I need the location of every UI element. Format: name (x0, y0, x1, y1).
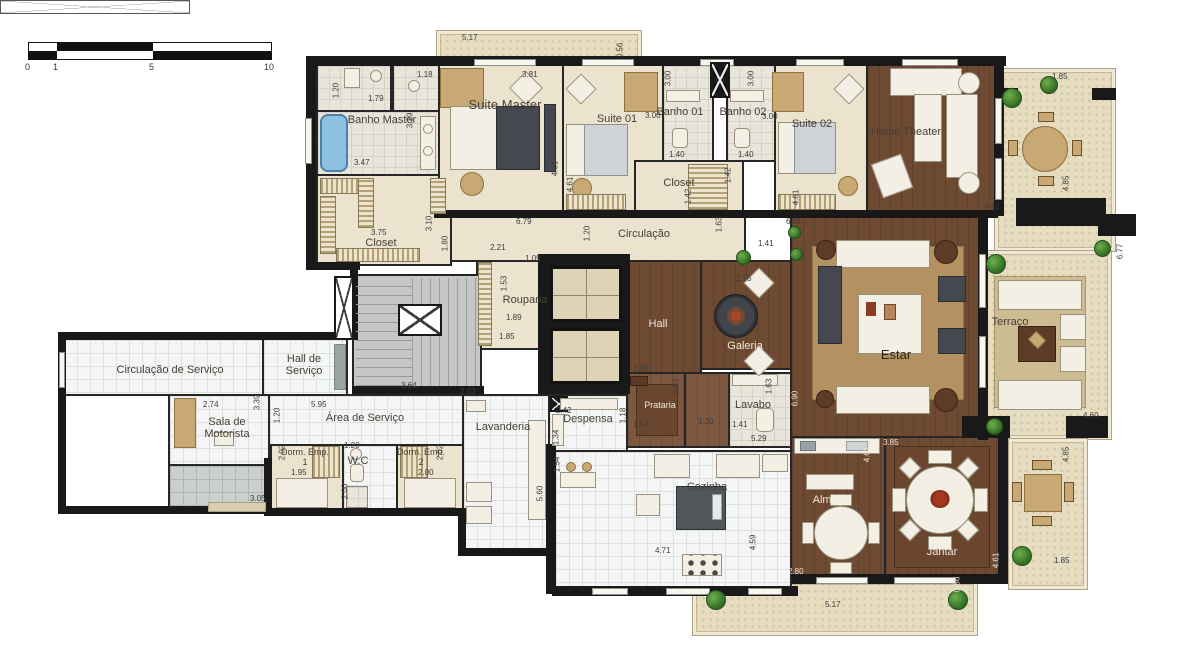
side-table (934, 240, 958, 264)
plant-icon (986, 418, 1003, 435)
terrace-chair (1038, 176, 1054, 186)
dim-label: 5.95 (311, 400, 327, 409)
scale-segment (57, 51, 153, 59)
chair (974, 488, 988, 512)
sink (423, 146, 433, 156)
scale-segment (29, 51, 57, 59)
window (796, 59, 844, 66)
dim-label: 2.42 (556, 406, 572, 415)
kitchen-counter (654, 454, 690, 478)
suite-02-desk (772, 72, 804, 112)
room-label-rouparia: Rouparia (490, 294, 560, 306)
wall-terrace-block-1 (1016, 198, 1106, 226)
estar-armchair (938, 276, 966, 302)
terrace-chair (1032, 516, 1052, 526)
window (979, 254, 986, 308)
terrace-chair (1012, 482, 1022, 502)
dim-label: 1.85 (499, 332, 515, 341)
almoco-table (814, 506, 868, 560)
laundry-sink (466, 506, 492, 524)
scale-label-0: 0 (25, 62, 30, 72)
room-label-suite-02: Suite 02 (777, 118, 847, 130)
home-theater-sofa (890, 68, 962, 96)
dim-label: 1.41 (732, 420, 748, 429)
washing-machine (466, 482, 492, 502)
plant-icon (1012, 546, 1032, 566)
terrace-chair (1038, 112, 1054, 122)
dorm2-bed (404, 478, 456, 508)
plant-icon (1094, 240, 1111, 257)
suite-master-ottoman (460, 172, 484, 196)
dim-label: 3.29 (405, 113, 414, 129)
kitchen-appliance (762, 454, 788, 472)
terrace-sofa (998, 280, 1082, 310)
dim-label: 5.60 (535, 486, 544, 502)
service-duct (0, 0, 190, 14)
window (59, 352, 65, 388)
dim-label: 3.10 (424, 216, 433, 232)
plant-icon (948, 590, 968, 610)
kitchen-table (560, 472, 596, 488)
shower-stall (346, 486, 368, 508)
room-label-cozinha: Cozinha (677, 481, 737, 493)
terrace-small-table (1024, 474, 1062, 512)
room-label-lavabo: Lavabo (725, 399, 781, 411)
counter-sink (800, 441, 816, 451)
coffee-table-decor (884, 304, 896, 320)
wicker-chair (1060, 346, 1086, 372)
dim-label: 1.63 (671, 379, 680, 395)
dim-label: 4.60 (1083, 411, 1099, 420)
window (995, 98, 1002, 144)
dim-label: 2.21 (490, 243, 506, 252)
scale-segment (153, 43, 271, 51)
dim-label: 3.00 (663, 71, 672, 87)
laundry-shelf (466, 400, 486, 412)
dim-label: 1.95 (291, 468, 307, 477)
dorm1-bed (276, 478, 328, 508)
room-label-suite-master: Suite Master (455, 98, 555, 113)
dim-label: 2.00 (340, 484, 349, 500)
room-label-dorm-emp-1: Dorm. Emp. 1 (280, 447, 330, 467)
almoco-sideboard (806, 474, 854, 490)
dim-label: 4.85 (1061, 447, 1070, 463)
wall-top (306, 56, 1006, 66)
room-label-closet-suites: Closet (649, 177, 709, 189)
table-centerpiece (930, 490, 950, 508)
suite-01-bed-cover (584, 124, 628, 176)
terrace-round-table (1022, 126, 1068, 172)
room-label-lavanderia: Lavanderia (463, 421, 543, 433)
dim-label: 1.09 (525, 254, 541, 263)
dim-label: 4.85 (1061, 176, 1070, 192)
side-table (958, 172, 980, 194)
dim-label: 1.20 (272, 408, 281, 424)
coffee-table-decor (866, 302, 876, 316)
terrace-chair (1032, 460, 1052, 470)
dim-label: 4.71 (655, 546, 671, 555)
dim-label: 3.47 (354, 158, 370, 167)
banho-01-counter (666, 90, 700, 102)
galeria-round-rug (714, 294, 758, 338)
dim-label: 4.61 (565, 177, 574, 193)
room-label-banho-02: Banho 02 (719, 106, 767, 118)
dim-label: 6.77 (1115, 244, 1124, 260)
shower-head (408, 80, 420, 92)
window (995, 158, 1002, 200)
service-elevator-shaft (334, 276, 354, 340)
floor-plan: Banho Master Suite Master Suite 01 Banho… (0, 0, 1200, 655)
toilet (672, 128, 688, 148)
dim-label: 4.61 (791, 190, 800, 206)
closet-wardrobe (430, 178, 446, 214)
service-mat (334, 344, 346, 390)
room-label-closet-master: Closet (351, 237, 411, 249)
scale-segment (153, 51, 271, 59)
dim-label: 1.41 (758, 239, 774, 248)
room-label-estar: Estar (866, 348, 926, 363)
chair (802, 522, 814, 544)
chair (868, 522, 880, 544)
dim-label: 1.80 (440, 236, 449, 252)
suite-02-ottoman (838, 176, 858, 196)
terrace-sofa (998, 380, 1082, 410)
dim-label: 3.05 (250, 494, 266, 503)
estar-chaise (818, 266, 842, 344)
toilet (344, 68, 360, 88)
dim-label: 4.42 (984, 202, 1000, 211)
window (474, 59, 536, 66)
chair (928, 450, 952, 464)
dim-label: 1.53 (499, 276, 508, 292)
dim-label: 1.34 (551, 430, 560, 446)
dim-label: 2.74 (203, 400, 219, 409)
suite-master-bed-cover (496, 106, 540, 170)
terrace-chair (1008, 140, 1018, 156)
dim-label: 3.75 (371, 228, 387, 237)
dim-label: 1.20 (344, 441, 360, 450)
plant-icon (706, 590, 726, 610)
bathtub (320, 114, 348, 172)
room-label-prataria: Prataria (628, 400, 692, 410)
wall-lavanderia-bottom (458, 548, 554, 556)
side-table (934, 388, 958, 412)
kitchen-counter (716, 454, 760, 478)
dim-label: 3.85 (883, 438, 899, 447)
dim-label: 1.89 (506, 313, 522, 322)
room-hall (626, 260, 702, 374)
chair (892, 488, 906, 512)
dim-label: 3.00 (746, 71, 755, 87)
estar-sofa-north (836, 240, 930, 268)
kitchen-island-panel (712, 494, 722, 520)
window (894, 577, 956, 584)
room-label-wc: W.C (340, 455, 376, 467)
dim-label: 1.20 (582, 226, 591, 242)
dim-label: 6.79 (516, 217, 532, 226)
estar-armchair (938, 328, 966, 354)
stove (682, 554, 722, 576)
plant-icon (736, 250, 751, 265)
wicker-chair (1060, 314, 1086, 340)
dim-label: 3.39 (252, 395, 261, 411)
dim-label: 1.18 (417, 70, 433, 79)
suite-01-wardrobe (566, 194, 626, 210)
prataria-cabinet (630, 376, 648, 386)
room-label-area-servico: Área de Serviço (310, 412, 420, 424)
side-table (816, 240, 836, 260)
dim-label: 4.61 (862, 447, 871, 463)
closet-wardrobe (358, 178, 374, 228)
room-label-terraco: Terraço (982, 316, 1038, 328)
dim-label: 2.75 (736, 274, 752, 283)
window (902, 59, 958, 66)
window (305, 118, 312, 164)
dim-label: 5.17 (825, 600, 841, 609)
elevator-1 (550, 266, 622, 322)
dim-label: 0.86 (952, 577, 961, 593)
toilet (734, 128, 750, 148)
suite-01-desk (624, 72, 658, 112)
dim-label: 1.54 (633, 420, 649, 429)
dim-label: 5.17 (462, 33, 478, 42)
dim-label: 3.00 (645, 111, 661, 120)
dim-label: 1.54 (552, 457, 561, 473)
window (592, 588, 628, 595)
dim-label: 1.40 (738, 150, 754, 159)
dim-label: 3.64 (401, 381, 417, 390)
kitchen-cabinet (636, 494, 660, 516)
dim-label: 4.61 (550, 161, 559, 177)
plant-icon (790, 248, 803, 261)
wall-service-top (62, 332, 354, 340)
dim-label: 3.00 (762, 112, 778, 121)
dim-label: 1.20 (331, 83, 340, 99)
estar-sofa-south (836, 386, 930, 414)
stool (566, 462, 576, 472)
terrace-chair (1064, 482, 1074, 502)
duct-shaft (710, 62, 730, 98)
terrace-chair (1072, 140, 1082, 156)
dim-label: 4.61 (991, 553, 1000, 569)
window (979, 336, 986, 388)
side-table (958, 72, 980, 94)
dim-label: 2.80 (788, 567, 804, 576)
plant-icon (1002, 88, 1022, 108)
suite-02-wardrobe (778, 194, 836, 210)
dim-label: 2.00 (418, 468, 434, 477)
elevator-2 (550, 328, 622, 384)
scale-bar (28, 42, 272, 60)
dim-label: 1.79 (368, 94, 384, 103)
dim-label: 2.02 (435, 445, 444, 461)
plant-icon (788, 226, 801, 239)
sink (423, 124, 433, 134)
room-label-banho-01: Banho 01 (656, 106, 704, 118)
side-table (816, 390, 834, 408)
room-label-sala-motorista: Sala de Motorista (192, 416, 262, 441)
home-theater-sectional (946, 94, 978, 178)
dim-label: 0.56 (615, 43, 624, 59)
room-label-jantar: Jantar (912, 546, 972, 558)
stool (582, 462, 592, 472)
toilet (756, 408, 774, 432)
room-label-hall: Hall (638, 318, 678, 330)
stair-void (398, 304, 442, 336)
dim-label: 4.59 (748, 535, 757, 551)
window (582, 59, 634, 66)
dim-label: 3.81 (522, 70, 538, 79)
sink (370, 70, 382, 82)
closet-wardrobe (336, 248, 420, 262)
dim-label: 2.02 (277, 445, 286, 461)
window (666, 588, 710, 595)
dim-label: 1.63 (764, 379, 773, 395)
dim-label: 1.55 (633, 364, 649, 373)
dim-label: 1.85 (1052, 72, 1068, 81)
window (816, 577, 868, 584)
scale-label-1: 1 (53, 62, 58, 72)
room-label-circulacao-servico: Circulação de Serviço (95, 364, 245, 376)
dim-label: 5.29 (751, 434, 767, 443)
dim-label: 2.83 (460, 387, 476, 396)
dim-label: 1.42 (683, 189, 692, 205)
entry-mat (208, 502, 266, 512)
wall-dorm-bottom (264, 508, 466, 516)
scale-segment (29, 43, 57, 51)
wall-terrace-post-2 (1092, 88, 1116, 100)
room-label-suite-01: Suite 01 (582, 113, 652, 125)
wall-terrace-block-2 (1098, 214, 1136, 236)
dim-label: 1.40 (669, 150, 685, 159)
window (748, 588, 782, 595)
banho-02-counter (730, 90, 764, 102)
scale-segment (57, 43, 153, 51)
chair (830, 562, 852, 574)
plant-icon (986, 254, 1006, 274)
dim-label: 6.90 (790, 391, 799, 407)
closet-wardrobe (320, 196, 336, 254)
room-label-hall-servico: Hall de Serviço (273, 353, 335, 378)
dim-label: 6.01 (786, 217, 802, 226)
dim-label: 1.20 (698, 417, 714, 426)
room-label-circulacao: Circulação (599, 228, 689, 240)
lavanderia-counter (528, 420, 546, 520)
dim-label: 1.63 (714, 217, 723, 233)
room-label-almoco: Almoço (801, 494, 861, 506)
room-label-home-theater: Home Theater (870, 126, 942, 138)
scale-label-10: 10 (264, 62, 274, 72)
dim-label: 1.42 (723, 168, 732, 184)
dim-label: 1.18 (618, 408, 627, 424)
scale-label-5: 5 (149, 62, 154, 72)
dim-label: 1.85 (1054, 556, 1070, 565)
room-label-galeria: Galeria (710, 340, 780, 352)
